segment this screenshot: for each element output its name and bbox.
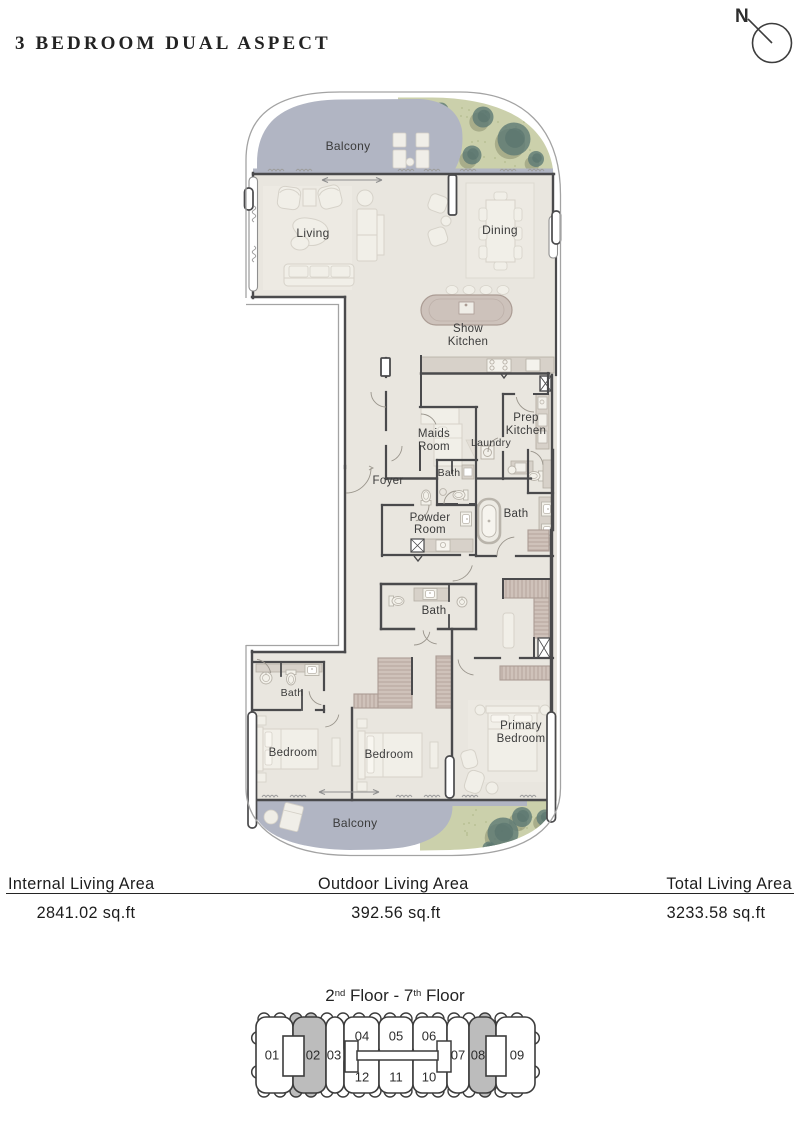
svg-text:04: 04	[355, 1029, 369, 1044]
svg-text:Balcony: Balcony	[326, 139, 371, 153]
svg-text:11: 11	[389, 1070, 403, 1085]
svg-text:07: 07	[451, 1048, 465, 1063]
svg-text:N: N	[735, 6, 749, 27]
svg-text:06: 06	[422, 1029, 436, 1044]
svg-text:01: 01	[265, 1048, 279, 1063]
svg-text:Bedroom: Bedroom	[269, 747, 318, 759]
svg-text:Laundry: Laundry	[471, 437, 511, 449]
svg-text:09: 09	[510, 1048, 524, 1063]
svg-text:Show: Show	[453, 323, 483, 335]
svg-text:Bath: Bath	[281, 687, 304, 699]
svg-text:Primary: Primary	[500, 720, 542, 732]
svg-text:Bath: Bath	[438, 467, 461, 479]
svg-text:Bath: Bath	[504, 508, 529, 520]
svg-text:Kitchen: Kitchen	[448, 336, 488, 348]
svg-text:05: 05	[389, 1029, 403, 1044]
svg-text:03: 03	[327, 1048, 341, 1063]
svg-text:02: 02	[306, 1048, 320, 1063]
svg-text:Bedroom: Bedroom	[365, 749, 414, 761]
svg-text:Prep: Prep	[513, 412, 539, 424]
svg-text:08: 08	[471, 1048, 485, 1063]
svg-text:10: 10	[422, 1070, 436, 1085]
svg-text:Living: Living	[296, 226, 329, 240]
svg-text:Powder: Powder	[410, 512, 451, 524]
svg-text:Dining: Dining	[482, 223, 518, 237]
svg-text:Bath: Bath	[422, 605, 447, 617]
svg-text:Room: Room	[414, 524, 446, 536]
svg-text:Room: Room	[418, 441, 450, 453]
svg-text:Balcony: Balcony	[333, 816, 378, 830]
svg-text:12: 12	[355, 1070, 369, 1085]
svg-text:Foyer: Foyer	[373, 475, 404, 487]
svg-text:Maids: Maids	[418, 428, 450, 440]
svg-text:Kitchen: Kitchen	[506, 425, 546, 437]
svg-text:Bedroom: Bedroom	[497, 733, 546, 745]
